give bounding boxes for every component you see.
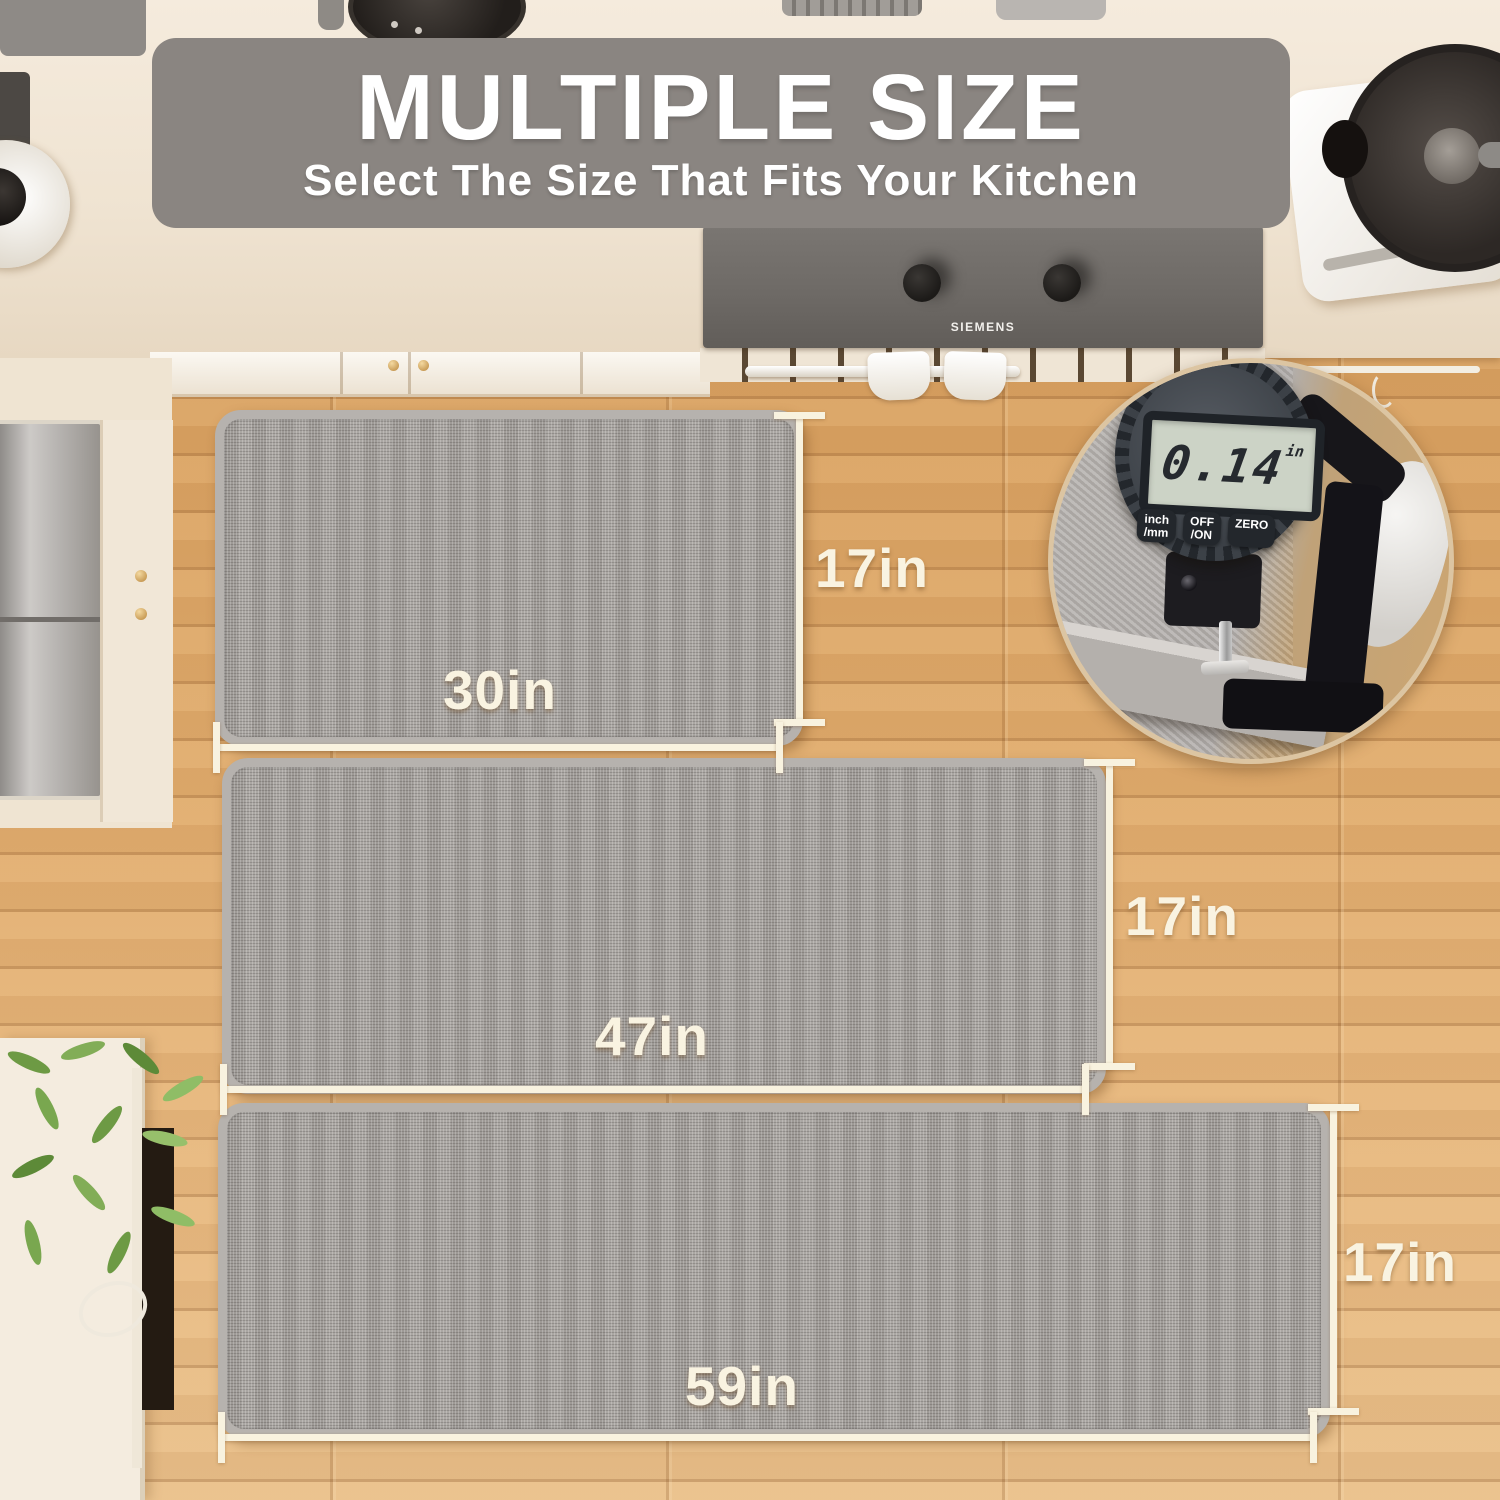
dimension-cap — [220, 1064, 227, 1115]
mat2-width-label: 47in — [595, 1004, 709, 1068]
zero-button: ZERO — [1227, 513, 1276, 549]
kettle-spout — [1322, 120, 1368, 178]
mat2-height-dimension-line — [1106, 762, 1113, 1068]
kettle-lid-knob — [1424, 128, 1480, 184]
gauge-anvil — [1201, 660, 1250, 675]
dimension-cap — [1084, 1063, 1135, 1070]
hanging-towel — [943, 351, 1007, 401]
cabinet-knob — [388, 360, 399, 371]
gauge-screw — [1181, 575, 1197, 591]
thickness-gauge-inset: 0.14in inch /mm OFF /ON ZERO — [1048, 358, 1454, 764]
mat3-height-label: 17in — [1343, 1230, 1457, 1294]
cabinet-gap — [580, 352, 583, 394]
cutting-board — [996, 0, 1106, 20]
mat2-height-label: 17in — [1125, 884, 1239, 948]
dimension-cap — [218, 1412, 225, 1463]
mat1-height-dimension-line — [796, 415, 803, 723]
kettle-handle — [1478, 142, 1500, 168]
mat2-width-dimension-line — [222, 1086, 1088, 1093]
cabinet-gap — [340, 352, 343, 394]
coffee-machine — [0, 0, 146, 56]
off-on-button: OFF /ON — [1182, 511, 1222, 546]
cooktop-knob — [1043, 264, 1081, 302]
mat1-width-dimension-line — [215, 744, 781, 751]
grille-tray — [782, 0, 922, 16]
appliance-door-divider — [0, 617, 100, 622]
pot-rivet — [415, 27, 422, 34]
cabinet-knob — [135, 608, 147, 620]
gauge-unit: in — [1285, 441, 1306, 460]
gauge-reading: 0.14 — [1158, 435, 1288, 496]
cabinet-knob — [135, 570, 147, 582]
dimension-cap — [1082, 1064, 1089, 1115]
gauge-lcd-display: 0.14in — [1138, 410, 1325, 521]
dimension-cap — [1084, 759, 1135, 766]
banner-title: MULTIPLE SIZE — [356, 61, 1086, 154]
banner-subtitle: Select The Size That Fits Your Kitchen — [303, 156, 1139, 206]
mat1-width-label: 30in — [443, 658, 557, 722]
headline-banner: MULTIPLE SIZE Select The Size That Fits … — [152, 38, 1290, 228]
cabinet-doors-top — [150, 352, 710, 397]
mat3-width-dimension-line — [220, 1434, 1316, 1441]
mat3-width-label: 59in — [685, 1354, 799, 1418]
dimension-cap — [1310, 1412, 1317, 1463]
pot-rivet — [391, 21, 398, 28]
stainless-appliance — [0, 420, 104, 800]
cabinet-gap — [408, 352, 411, 394]
cooktop-brand: SIEMENS — [951, 320, 1016, 334]
dimension-cap — [774, 412, 825, 419]
product-size-infographic: SIEMENS — [0, 0, 1500, 1500]
cooktop-knob — [903, 264, 941, 302]
utensil — [318, 0, 344, 30]
dimension-cap — [776, 722, 783, 773]
mat1-height-label: 17in — [815, 536, 929, 600]
door-frame — [132, 1068, 142, 1468]
kitchen-island — [0, 1038, 145, 1500]
dark-cabinet-opening — [142, 1128, 174, 1410]
cooktop: SIEMENS — [703, 226, 1263, 348]
dimension-cap — [213, 722, 220, 773]
hanging-towel — [867, 351, 931, 401]
gauge-stem-block — [1164, 551, 1263, 628]
cabinet-knob — [418, 360, 429, 371]
side-cabinet — [100, 420, 173, 822]
gauge-frame-base — [1222, 678, 1384, 734]
inch-mm-button: inch /mm — [1136, 508, 1176, 543]
mat3-height-dimension-line — [1330, 1107, 1337, 1413]
dimension-cap — [1308, 1104, 1359, 1111]
